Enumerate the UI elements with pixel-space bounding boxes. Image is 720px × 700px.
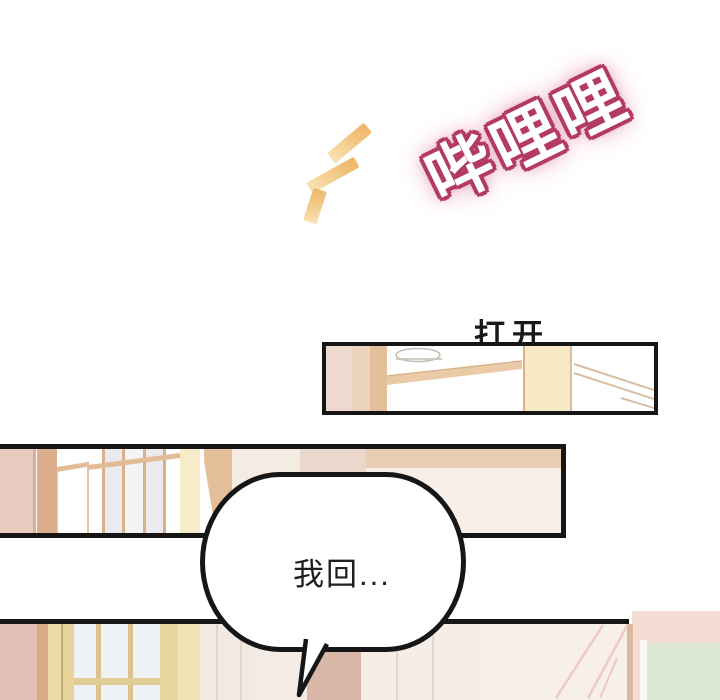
- wall-edge: [37, 624, 48, 700]
- muntin-bar: [128, 624, 133, 700]
- wall-top-strip: [366, 449, 561, 468]
- comic-page: 哔哩哩 打开: [0, 0, 720, 700]
- door-rail: [74, 678, 160, 685]
- frame-line: [61, 624, 63, 700]
- frame-line: [523, 346, 525, 411]
- door-stile: [48, 624, 61, 700]
- wall-strip: [0, 449, 35, 533]
- wall-strip: [326, 346, 352, 411]
- tail-shape: [299, 639, 327, 695]
- wall-corner-line: [621, 398, 654, 408]
- panel-1-scene: [326, 346, 654, 411]
- door-frame: [37, 449, 57, 533]
- door-frame-edge: [627, 624, 633, 700]
- speech-bubble-text: 我回...: [293, 549, 391, 594]
- wall-column: [180, 449, 200, 533]
- glass-pane: [166, 449, 180, 533]
- window-frame: [640, 640, 647, 700]
- frame-line: [570, 346, 572, 411]
- pane-divider: [163, 449, 166, 533]
- green-window: [647, 643, 720, 700]
- frame-line: [216, 624, 218, 700]
- wall-edge: [33, 449, 36, 533]
- sound-effect-text: 哔哩哩: [382, 35, 673, 239]
- emphasis-dash: [327, 123, 372, 164]
- wall-strip: [0, 624, 37, 700]
- door-stile: [160, 624, 178, 700]
- door-stile: [63, 624, 74, 700]
- wall-strip: [352, 346, 370, 411]
- wall: [481, 624, 627, 700]
- wall-pillar: [370, 346, 387, 411]
- door-column: [525, 346, 572, 411]
- panel-3-bleed: [632, 611, 720, 625]
- pane-divider: [102, 449, 105, 533]
- speech-bubble: 我回...: [200, 472, 466, 652]
- glass-panel: [74, 624, 160, 700]
- speech-bubble-tail: [288, 636, 336, 700]
- glass-pane: [89, 449, 102, 533]
- panel-1: [322, 342, 658, 415]
- emphasis-dash: [303, 188, 327, 225]
- wall-column: [178, 624, 200, 700]
- muntin-bar: [96, 624, 101, 700]
